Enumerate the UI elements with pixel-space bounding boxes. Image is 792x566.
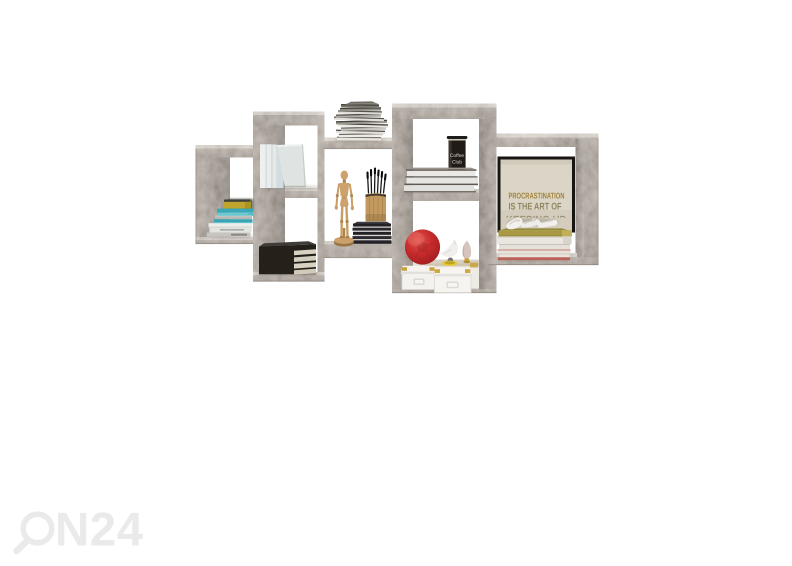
svg-text:PROCRASTINATION: PROCRASTINATION [509, 190, 565, 200]
svg-text:N24: N24 [55, 504, 144, 557]
svg-text:Coffee: Coffee [450, 153, 465, 159]
svg-text:IS THE ART OF: IS THE ART OF [509, 202, 562, 213]
svg-text:Club: Club [452, 160, 462, 166]
